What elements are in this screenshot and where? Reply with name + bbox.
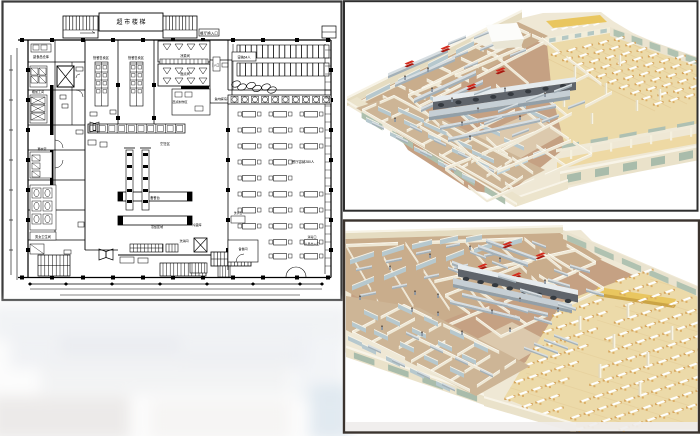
svg-text:入口: 入口: [214, 63, 220, 67]
svg-text:更衣室: 更衣室: [37, 146, 46, 151]
svg-text:鱼肉解冻间: 鱼肉解冻间: [214, 96, 229, 101]
svg-text:蒸饭区域: 蒸饭区域: [151, 224, 163, 229]
svg-text:超 市 楼 梯: 超 市 楼 梯: [116, 18, 145, 26]
svg-text:消毒口: 消毒口: [307, 234, 316, 239]
svg-text:快餐售卖区: 快餐售卖区: [93, 55, 110, 60]
svg-text:容纳64人: 容纳64人: [237, 55, 251, 60]
svg-text:洗消间: 洗消间: [179, 238, 188, 243]
svg-text:人员出入口: 人员出入口: [304, 241, 319, 246]
svg-text:餐厅换入口: 餐厅换入口: [200, 31, 218, 36]
svg-text:洗手台: 洗手台: [234, 211, 243, 215]
svg-text:烹饪区: 烹饪区: [160, 141, 171, 146]
svg-text:备餐间: 备餐间: [238, 246, 247, 251]
svg-text:副食品仓库: 副食品仓库: [33, 54, 50, 59]
svg-text:面点间: 面点间: [180, 71, 190, 76]
svg-text:冷藏库: 冷藏库: [192, 222, 201, 227]
svg-text:餐厅容纳280人: 餐厅容纳280人: [292, 159, 315, 164]
svg-text:西点制作区: 西点制作区: [172, 99, 187, 104]
svg-text:男女卫生间: 男女卫生间: [35, 234, 51, 239]
svg-text:备餐台: 备餐台: [150, 195, 160, 200]
svg-text:凉菜间: 凉菜间: [180, 53, 190, 58]
svg-text:粗加工间: 粗加工间: [32, 89, 44, 94]
svg-text:快餐售卖区: 快餐售卖区: [128, 55, 145, 60]
